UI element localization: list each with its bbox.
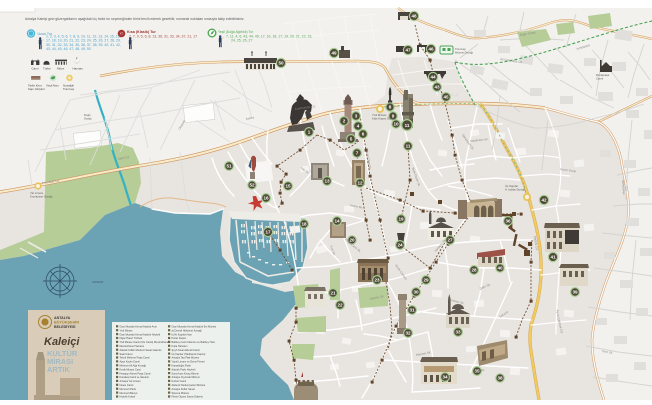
svg-text:Balibey Cami Kalıntısı ve Bali: Balibey Cami Kalıntısı ve Balibey Hanı <box>172 340 216 344</box>
svg-text:Gazi Mustafa Kemal Atatürk Anı: Gazi Mustafa Kemal Atatürk Anıtı <box>120 325 158 329</box>
svg-text:17: 17 <box>265 230 271 235</box>
svg-text:Şeyh Sinan Efendi Camii: Şeyh Sinan Efendi Camii <box>172 348 201 352</box>
svg-text:42: 42 <box>541 198 547 203</box>
svg-text:46: 46 <box>428 47 434 52</box>
svg-text:Yacht Limanı ve Deniz Feneri: Yacht Limanı ve Deniz Feneri <box>172 360 206 364</box>
svg-text:1: 1 <box>308 130 311 135</box>
svg-text:BELEDİYESİ: BELEDİYESİ <box>54 325 75 329</box>
svg-text:Mermerli Banyo: Mermerli Banyo <box>120 391 138 395</box>
svg-text:43: 43 <box>434 85 440 90</box>
svg-text:Yivli Minare Camii (Ulu Camii): Yivli Minare Camii (Ulu Camii) Mevleviha… <box>120 340 169 344</box>
svg-text:28: 28 <box>471 268 477 273</box>
svg-text:32: 32 <box>405 331 411 336</box>
svg-text:Hesapçı Ahmet Paşa Camii: Hesapçı Ahmet Paşa Camii <box>120 371 151 375</box>
svg-text:Gazi Mustafa Kemal Atatürk Hey: Gazi Mustafa Kemal Atatürk Heykeli <box>120 332 161 336</box>
svg-text:47: 47 <box>405 48 411 53</box>
svg-text:Hamam: Hamam <box>73 67 84 71</box>
svg-text:2, 7, 9, 5, 6, 8, 13, 36, 31,: 2, 7, 9, 5, 6, 8, 13, 36, 31, 33, 34, 37… <box>129 35 197 39</box>
svg-text:Camii: Camii <box>596 76 604 80</box>
svg-text:8: 8 <box>389 105 392 110</box>
svg-text:4: 4 <box>357 124 360 129</box>
svg-text:Antalya Taş Plak Müzesi: Antalya Taş Plak Müzesi <box>172 356 200 360</box>
svg-text:A. Işıklar Durağı: A. Işıklar Durağı <box>505 187 525 191</box>
svg-text:Yeşil Alan: Yeşil Alan <box>46 84 59 88</box>
svg-text:Saat Kulesi: Saat Kulesi <box>120 352 133 356</box>
svg-text:10: 10 <box>393 122 399 127</box>
svg-text:5: 5 <box>350 137 353 142</box>
svg-text:Garajı: Garajı <box>84 116 92 120</box>
svg-text:23: 23 <box>374 278 380 283</box>
svg-text:Ayşe Kadın Camii: Ayşe Kadın Camii <box>120 360 141 364</box>
svg-text:50: 50 <box>278 61 284 66</box>
svg-text:Mevlevihane Hamamı: Mevlevihane Hamamı <box>120 344 145 348</box>
svg-text:Müzesi Durağı: Müzesi Durağı <box>455 50 473 54</box>
svg-text:Tekeli Mehmet Paşa Camii: Tekeli Mehmet Paşa Camii <box>120 356 151 360</box>
svg-text:Antalya Oyuncak Müzesi: Antalya Oyuncak Müzesi <box>172 375 200 379</box>
svg-text:34: 34 <box>442 375 448 380</box>
svg-text:29: 29 <box>423 278 429 283</box>
svg-text:11: 11 <box>406 144 411 149</box>
svg-text:Kruvaziyer Durağı: Kruvaziyer Durağı <box>30 194 53 198</box>
svg-text:48: 48 <box>411 14 417 19</box>
svg-text:Kısa (Klasik) Tur: Kısa (Klasik) Tur <box>127 30 156 34</box>
svg-text:15: 15 <box>285 184 291 189</box>
svg-text:49: 49 <box>331 51 337 56</box>
svg-text:Kale Kapısı Durağı: Kale Kapısı Durağı <box>372 116 396 120</box>
svg-text:12: 12 <box>357 181 363 186</box>
svg-text:Akdeniz Medeniyetleri Müzesi: Akdeniz Medeniyetleri Müzesi <box>172 383 206 387</box>
svg-text:45: 45 <box>443 95 449 100</box>
svg-text:44: 44 <box>430 75 436 80</box>
svg-text:ANTALYA: ANTALYA <box>54 316 71 320</box>
svg-text:Antalya Yat Limanı: Antalya Yat Limanı <box>120 379 141 383</box>
svg-text:Gazi Mustafa Kemal Atatürk Evi: Gazi Mustafa Kemal Atatürk Evi Müzesi <box>172 325 217 329</box>
svg-text:38: 38 <box>497 376 503 381</box>
svg-text:Mermerli Parkı: Mermerli Parkı <box>120 387 137 391</box>
svg-text:ARTIK: ARTIK <box>47 365 70 374</box>
svg-text:41: 41 <box>550 255 556 260</box>
svg-text:14: 14 <box>334 219 340 224</box>
svg-text:Mehmet Ali Ağa Konağı: Mehmet Ali Ağa Konağı <box>120 364 147 368</box>
svg-text:Fikret Otyam Sanat Galerisi: Fikret Otyam Sanat Galerisi <box>172 395 204 399</box>
svg-text:Cami: Cami <box>32 67 39 71</box>
svg-text:24: 24 <box>397 243 403 248</box>
svg-text:19: 19 <box>398 217 404 222</box>
svg-text:Karaalioğlu Parkı: Karaalioğlu Parkı <box>172 364 192 368</box>
svg-text:Yivli Minare: Yivli Minare <box>120 328 134 332</box>
svg-text:2: 2 <box>343 119 346 124</box>
svg-text:Antalya Kaleiçi gezi güzergahl: Antalya Kaleiçi gezi güzergahlarını aşağ… <box>25 17 245 21</box>
svg-text:Türbe: Türbe <box>43 67 51 71</box>
svg-text:24, 25, 26, 27: 24, 25, 26, 27 <box>231 39 252 43</box>
svg-text:52: 52 <box>249 183 255 188</box>
svg-text:27: 27 <box>447 238 453 243</box>
svg-text:Tramvay: Tramvay <box>63 87 75 91</box>
svg-text:51: 51 <box>226 164 232 169</box>
svg-text:33: 33 <box>455 330 461 335</box>
svg-text:Antalya Kültür Sanat: Antalya Kültür Sanat <box>172 387 196 391</box>
svg-text:40: 40 <box>497 266 503 271</box>
svg-text:BÜYÜKŞEHİR: BÜYÜKŞEHİR <box>54 320 79 325</box>
svg-text:16: 16 <box>263 196 269 201</box>
svg-text:Atatürk Parkı Heykeli: Atatürk Parkı Heykeli <box>172 367 196 371</box>
svg-text:Nigar Hatun Türbesi: Nigar Hatun Türbesi <box>120 336 143 340</box>
svg-text:Sinema Müzesi: Sinema Müzesi <box>172 391 190 395</box>
svg-text:11: 11 <box>405 123 410 128</box>
svg-text:Kışla Hamamı: Kışla Hamamı <box>172 344 188 348</box>
svg-text:Pazar Kapısı: Pazar Kapısı <box>172 336 187 340</box>
svg-text:43, 44, 45, 46, 47, 48, 49, 50: 43, 44, 45, 46, 47, 48, 49, 50 <box>46 47 91 51</box>
svg-text:22: 22 <box>337 303 343 308</box>
svg-text:7: 7 <box>356 151 359 156</box>
svg-text:Atatürk Kültür Merkezi Sanat G: Atatürk Kültür Merkezi Sanat Galerisi <box>120 348 162 352</box>
svg-text:Kapı Girişleri: Kapı Girişleri <box>28 87 45 91</box>
svg-text:18: 18 <box>301 222 307 227</box>
svg-text:13: 13 <box>324 179 330 184</box>
svg-text:21: 21 <box>330 291 336 296</box>
svg-text:30: 30 <box>413 290 419 295</box>
svg-text:a) Denizli Hükümet Konağı: a) Denizli Hükümet Konağı <box>172 328 203 332</box>
svg-text:39: 39 <box>572 290 578 295</box>
svg-text:Kaleiçi: Kaleiçi <box>44 336 80 348</box>
svg-text:36: 36 <box>505 219 511 224</box>
svg-text:Korkut Camii: Korkut Camii <box>172 379 187 383</box>
svg-text:KT: KT <box>120 33 124 36</box>
svg-text:Hıdırlık Kulesi: Hıdırlık Kulesi <box>120 395 136 399</box>
svg-text:Kesik Minare Cami: Kesik Minare Cami <box>120 367 142 371</box>
svg-text:Üç Kapılar (Hadrianus Kapısı): Üç Kapılar (Hadrianus Kapısı) <box>172 352 206 356</box>
svg-text:31: 31 <box>409 308 415 313</box>
svg-text:Müze: Müze <box>57 67 65 71</box>
svg-text:3: 3 <box>355 114 358 119</box>
svg-text:6: 6 <box>362 132 365 137</box>
